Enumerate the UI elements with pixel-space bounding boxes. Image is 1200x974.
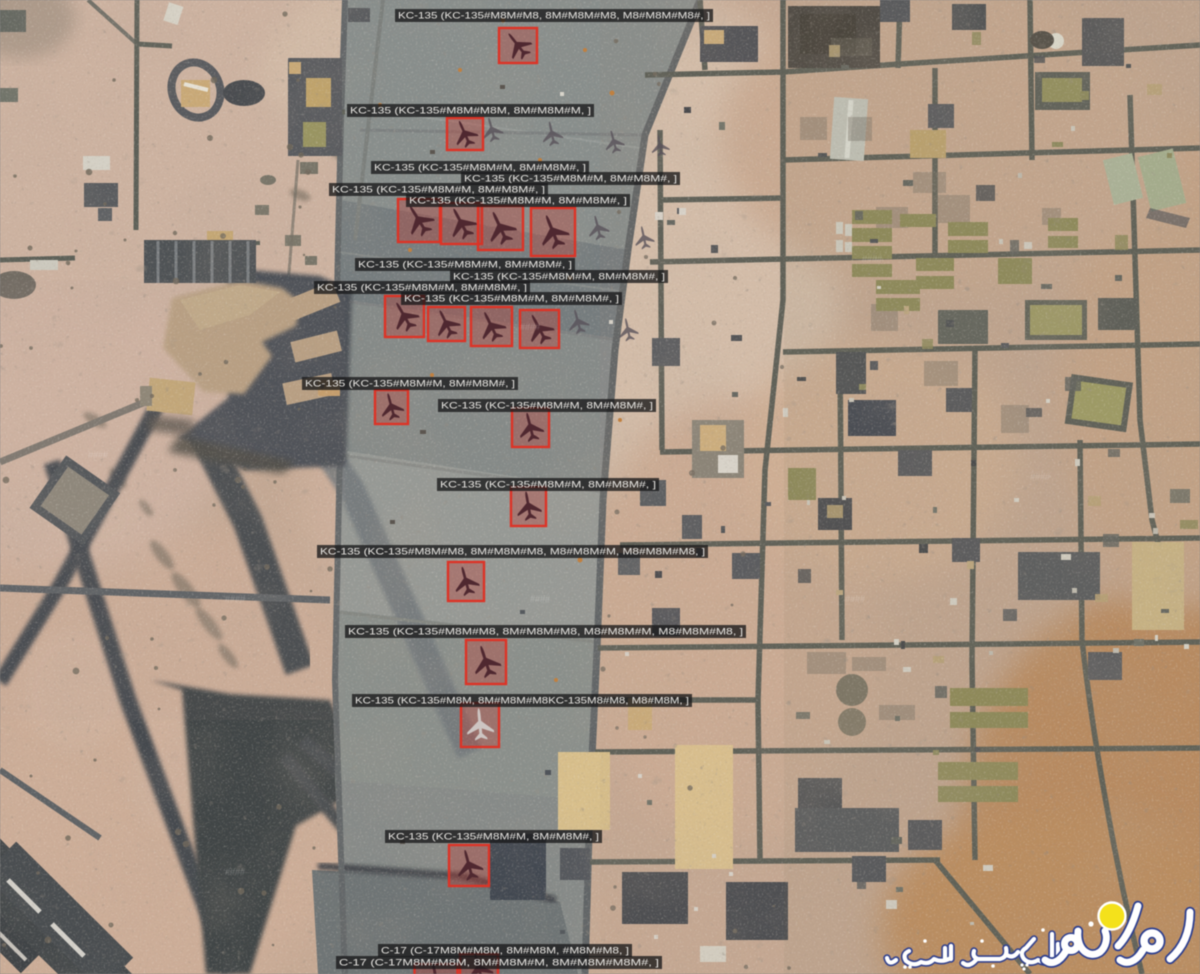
svg-text:####: #### [520,322,540,332]
svg-text:KC-135 (KC-135#M8M#M, 8M#M8M#,: KC-135 (KC-135#M8M#M, 8M#M8M#, ] [464,174,677,184]
svg-text:KC-135 (KC-135#M8M#M, 8M#M8M#,: KC-135 (KC-135#M8M#M, 8M#M8M#, ] [305,379,515,389]
svg-text:KC-135 (KC-135#M8M#M8, 8M#M8M#: KC-135 (KC-135#M8M#M8, 8M#M8M#M8, M8#M8M… [398,11,710,21]
svg-text:####: #### [225,594,245,604]
svg-text:KC-135 (KC-135#M8M#M, 8M#M8M#,: KC-135 (KC-135#M8M#M, 8M#M8M#, ] [317,283,527,293]
svg-text:KC-135 (KC-135#M8M#M, 8M#M8M#,: KC-135 (KC-135#M8M#M, 8M#M8M#, ] [441,401,653,411]
svg-text:KC-135 (KC-135#M8M#M, 8M#M8M#,: KC-135 (KC-135#M8M#M, 8M#M8M#, ] [332,185,545,195]
svg-text:KC-135 (KC-135#M8M#M, 8M#M8M#,: KC-135 (KC-135#M8M#M, 8M#M8M#, ] [388,832,599,842]
svg-text:KC-135 (KC-135#M8M#M8, 8M#M8M#: KC-135 (KC-135#M8M#M8, 8M#M8M#M8, M8#M8M… [320,547,705,557]
svg-text:KC-135 (KC-135#M8M#M, 8M#M8M#,: KC-135 (KC-135#M8M#M, 8M#M8M#, ] [358,260,572,270]
svg-text:C-17 (C-17M8M#M8M, 8M#M8M, #M8: C-17 (C-17M8M#M8M, 8M#M8M, #M8M#M8, ] [381,946,629,956]
svg-text:KC-135 (KC-135#M8M#M8, 8M#M8M#: KC-135 (KC-135#M8M#M8, 8M#M8M#M8, M8#M8M… [348,627,743,637]
svg-text:KC-135 (KC-135#M8M#M, 8M#M8M#,: KC-135 (KC-135#M8M#M, 8M#M8M#, ] [409,196,627,206]
svg-text:####: #### [530,594,550,604]
svg-text:C-17 (C-17M8M#M8M, 8M#M8M#M, 8: C-17 (C-17M8M#M8M, 8M#M8M#M, 8M#M8M#M8M#… [339,958,659,968]
svg-text:KC-135 (KC-135#M8M#M, 8M#M8M#,: KC-135 (KC-135#M8M#M, 8M#M8M#, ] [404,294,619,304]
svg-text:####: #### [1030,472,1050,482]
svg-text:####: #### [862,254,882,264]
svg-text:KC-135 (KC-135#M8M#M8M, 8M#M8M: KC-135 (KC-135#M8M#M8M, 8M#M8M#M, ] [350,106,591,116]
svg-text:####: #### [845,594,865,604]
svg-text:KC-135 (KC-135#M8M#M, 8M#M8M#,: KC-135 (KC-135#M8M#M, 8M#M8M#, ] [374,163,586,173]
svg-text:####: #### [88,450,108,460]
svg-text:####: #### [225,867,245,877]
svg-text:KC-135 (KC-135#M8M#M, 8M#M8M#,: KC-135 (KC-135#M8M#M, 8M#M8M#, ] [440,480,656,490]
svg-text:KC-135 (KC-135#M8M#M, 8M#M8M#,: KC-135 (KC-135#M8M#M, 8M#M8M#, ] [453,272,665,282]
svg-text:KC-135 (KC-135#M8M, 8M#M8M#M8K: KC-135 (KC-135#M8M, 8M#M8M#M8KC-135M8#M8… [355,696,689,706]
